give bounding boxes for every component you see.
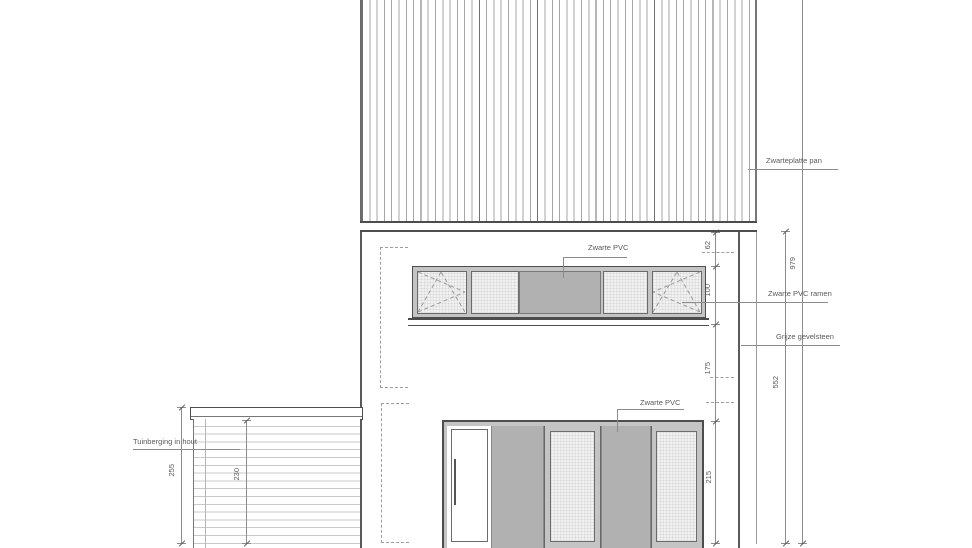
roof-cladding <box>360 0 757 222</box>
casement-opening-symbol-left <box>418 272 465 312</box>
label-windows: Zwarte PVC ramen <box>768 289 832 298</box>
dim-line-552 <box>785 231 786 543</box>
floor-slab-dash-3 <box>706 402 734 403</box>
shed-fascia-inner-line <box>191 416 362 417</box>
label-roof-material: Zwarteplatte pan <box>766 156 822 165</box>
dim-tick <box>177 407 186 408</box>
pvc-panel-upper <box>519 271 601 314</box>
shed-wall-siding <box>193 419 360 548</box>
dim-text-552: 552 <box>771 376 780 389</box>
dim-tick <box>798 543 807 544</box>
dim-tick <box>711 266 720 267</box>
label-lower-panel: Zwarte PVC <box>640 398 680 407</box>
dim-tick <box>711 324 720 325</box>
shed-corner-trim <box>205 419 206 548</box>
dim-text-979: 979 <box>788 257 797 270</box>
roof-edge-extension-line <box>756 232 757 544</box>
dim-line-979 <box>802 0 803 543</box>
dim-tick <box>242 420 251 421</box>
dim-tick <box>711 232 720 233</box>
glazed-door-left <box>550 431 595 542</box>
label-shed: Tuinberging in hout <box>133 437 197 446</box>
dim-text-175: 175 <box>703 362 712 375</box>
hidden-element-upper <box>380 247 408 388</box>
leader-windows <box>682 302 828 303</box>
pvc-panel-lower-right <box>601 426 651 548</box>
dim-text-230: 230 <box>232 468 241 481</box>
dim-chain-line <box>715 232 716 543</box>
leader-upper-panel-h <box>563 257 627 258</box>
leader-upper-panel-v <box>563 257 564 278</box>
elevation-drawing: Zwarte PVC Zwarte PVC Tuinberging in hou… <box>0 0 972 548</box>
leader-roof-material <box>748 169 838 170</box>
pvc-panel-lower-left <box>491 426 544 548</box>
window-sill <box>408 318 709 326</box>
leader-lower-panel-h <box>617 409 684 410</box>
dim-text-215: 215 <box>704 471 713 484</box>
label-upper-panel: Zwarte PVC <box>588 243 628 252</box>
floor-slab-dash-2 <box>710 377 734 378</box>
dim-tick <box>711 421 720 422</box>
dim-text-62: 62 <box>703 241 712 249</box>
leader-shed <box>133 449 240 450</box>
dim-tick <box>781 543 790 544</box>
fixed-glass-left <box>471 271 519 314</box>
dim-line-230 <box>246 420 247 544</box>
glazed-door-right <box>656 431 697 542</box>
casement-window-right <box>652 271 702 314</box>
dim-tick <box>711 543 720 544</box>
dim-tick <box>242 543 251 544</box>
casement-window-left <box>417 271 467 314</box>
leader-lower-panel-v <box>617 409 618 432</box>
leader-facade <box>741 345 840 346</box>
dim-tick <box>781 231 790 232</box>
dim-text-255: 255 <box>167 464 176 477</box>
dim-text-100: 100 <box>703 284 712 297</box>
casement-opening-symbol-right <box>653 272 700 312</box>
label-facade: Grijze gevelsteen <box>776 332 834 341</box>
dim-tick <box>177 543 186 544</box>
floor-slab-dash-1 <box>702 252 734 253</box>
dim-line-255 <box>181 407 182 544</box>
hidden-element-lower <box>381 403 409 543</box>
fixed-glass-right <box>603 271 648 314</box>
gutter-band <box>360 221 757 232</box>
front-door-leaf <box>451 429 488 542</box>
door-handle <box>454 459 456 505</box>
